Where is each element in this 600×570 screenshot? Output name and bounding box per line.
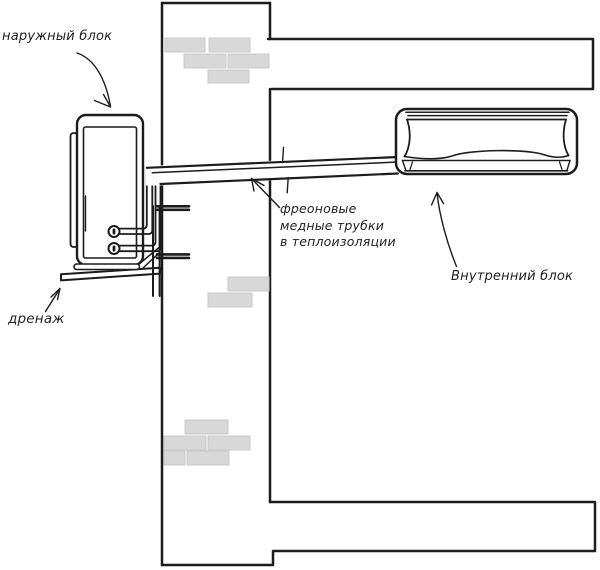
ceiling-slab bbox=[268, 39, 593, 89]
brick bbox=[184, 54, 226, 68]
label-drain: дренаж bbox=[8, 311, 65, 328]
brick bbox=[187, 451, 229, 465]
valve-stem bbox=[113, 229, 116, 235]
brick bbox=[165, 38, 205, 52]
valve-stem bbox=[113, 246, 116, 252]
label-freon-pipes: фреоновые медные трубки в теплоизоляции bbox=[280, 201, 396, 251]
brick bbox=[208, 436, 250, 450]
arrow-to-indoor-unit bbox=[437, 193, 457, 267]
wall-pass-tick bbox=[283, 148, 284, 163]
floor-slab bbox=[162, 502, 595, 565]
brick-cluster-top bbox=[165, 38, 269, 83]
wall-pass-tick bbox=[287, 178, 288, 193]
arrow-to-pipes bbox=[252, 179, 280, 208]
brick bbox=[164, 451, 185, 465]
brick bbox=[208, 70, 249, 83]
pipe-bundle-fill bbox=[146, 156, 398, 186]
outdoor-unit-body bbox=[77, 115, 143, 265]
brick bbox=[228, 277, 269, 291]
label-indoor-unit: Внутренний блок bbox=[451, 269, 573, 286]
label-outdoor-unit: наружный блок bbox=[2, 29, 112, 46]
brick bbox=[208, 293, 252, 307]
brick-cluster-middle bbox=[208, 277, 269, 307]
arrowhead-icon bbox=[51, 289, 60, 300]
brick bbox=[185, 420, 228, 434]
brick-cluster-lower bbox=[164, 420, 250, 465]
outdoor-unit-base bbox=[74, 264, 140, 270]
brick bbox=[228, 54, 269, 68]
ac-installation-diagram: наружный блок фреоновые медные трубки в … bbox=[0, 0, 600, 570]
brick bbox=[209, 38, 250, 52]
indoor-unit bbox=[396, 109, 577, 174]
brick bbox=[164, 436, 206, 450]
